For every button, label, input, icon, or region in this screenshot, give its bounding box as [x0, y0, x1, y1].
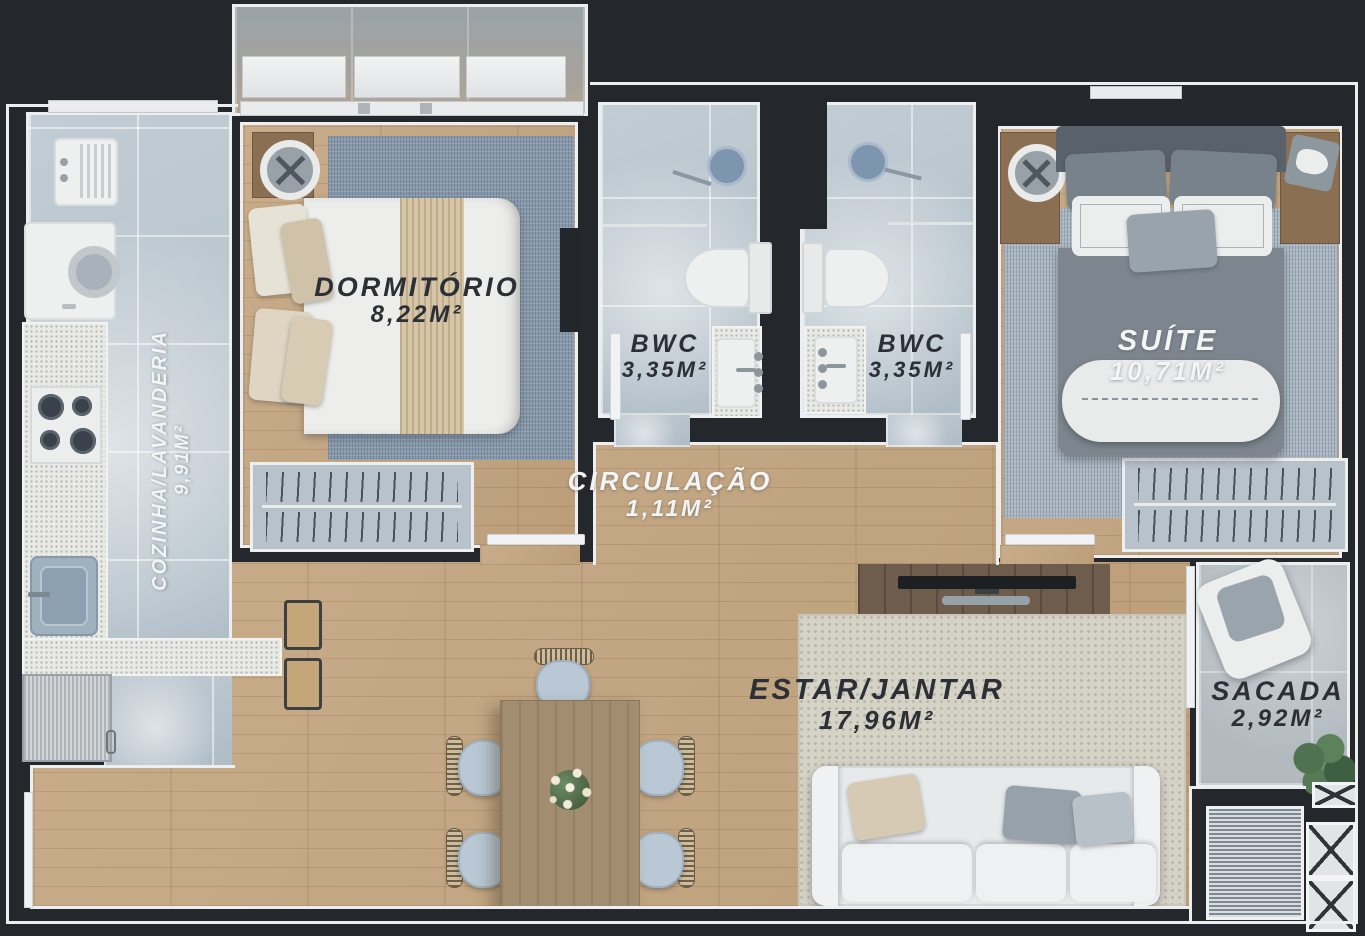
- living-side-window: [24, 792, 33, 908]
- bottom-wall-trim: [30, 906, 1192, 909]
- washing-machine: [24, 222, 116, 320]
- sofa: [812, 766, 1160, 906]
- room-area: 2,92M²: [1232, 706, 1325, 733]
- condenser-grille: [1206, 806, 1304, 920]
- shower-head: [848, 142, 888, 182]
- bathroom-left-door-opening: [614, 415, 690, 447]
- sofa-seat-cushion: [1070, 844, 1156, 902]
- toilet-bowl: [684, 248, 750, 308]
- sink-knob: [818, 380, 827, 389]
- washboard-ridges: [80, 144, 114, 198]
- hanging-clothes: [1138, 468, 1332, 500]
- suite-door-opening: [1000, 545, 1094, 565]
- shaft-wall: [797, 99, 827, 229]
- kitchen-floor-extension: [104, 668, 232, 768]
- bedroom-wardrobe: [250, 462, 474, 552]
- sink-spout: [736, 368, 756, 372]
- kitchen-sink: [30, 556, 98, 636]
- shower-glass-partition: [888, 222, 974, 225]
- flower-blossoms: [546, 766, 594, 814]
- washer-latch: [62, 304, 76, 309]
- ac-unit: [466, 56, 566, 98]
- room-label-dormitorio: DORMITÓRIO 8,22M²: [317, 272, 517, 329]
- burner: [72, 396, 92, 416]
- bedroom-door-leaf: [487, 534, 585, 545]
- tech-corner-trim: [1189, 786, 1306, 789]
- fridge-handle: [106, 730, 116, 754]
- bedroom-window: [240, 101, 584, 116]
- decor-tray: [1283, 134, 1340, 193]
- room-area: 9,91M²: [172, 424, 194, 495]
- bathroom-right-door-opening: [886, 415, 962, 447]
- sink-knob: [754, 384, 763, 393]
- sofa-pillow: [846, 773, 926, 842]
- bar-stool: [284, 600, 322, 650]
- armchair-cushion: [1215, 573, 1287, 644]
- toilet-bowl: [824, 248, 890, 308]
- shaft-marker-icon: [1312, 782, 1358, 808]
- closet-rail: [262, 505, 463, 508]
- suite-door-leaf: [1005, 534, 1095, 545]
- bar-stool: [284, 658, 322, 710]
- room-label-circulacao: CIRCULAÇÃO 1,11M²: [550, 467, 790, 522]
- outer-wall-trim: [1355, 84, 1358, 924]
- suite-window: [1090, 86, 1182, 99]
- sink-knob: [818, 348, 827, 357]
- burner: [38, 394, 64, 420]
- room-area: 10,71M²: [1110, 357, 1226, 386]
- room-name: COZINHA/LAVANDERIA: [149, 330, 172, 591]
- hanging-clothes: [1138, 510, 1332, 542]
- sofa-pillow: [1072, 791, 1135, 847]
- bedroom-door-opening: [480, 545, 580, 565]
- tank-faucet: [60, 174, 68, 182]
- burner: [40, 430, 60, 450]
- window-mullion: [420, 103, 432, 114]
- folded-cloth: [1294, 147, 1330, 177]
- elevator-shaft-icon: [1306, 822, 1356, 878]
- toilet-tank: [802, 242, 824, 314]
- window-mullion: [358, 103, 370, 114]
- outer-wall-trim: [6, 104, 238, 107]
- soundbar: [942, 596, 1030, 605]
- tank-faucet: [60, 158, 68, 166]
- room-name: SACADA: [1211, 676, 1345, 706]
- ac-unit: [354, 56, 460, 98]
- balcony-sliding-door: [1186, 566, 1195, 708]
- room-area: 1,11M²: [626, 496, 714, 522]
- suite-double-bed: [1056, 126, 1286, 456]
- room-label-cozinha: COZINHA/LAVANDERIA 9,91M²: [138, 330, 204, 590]
- room-label-bwc-left: BWC 3,35M²: [605, 330, 725, 383]
- outer-wall-trim: [6, 104, 9, 924]
- sink-spout: [826, 364, 846, 368]
- shower-glass-partition: [601, 224, 707, 227]
- cooktop: [30, 386, 102, 464]
- toilet-tank: [748, 242, 772, 314]
- tech-corner-trim: [1189, 788, 1192, 924]
- laundry-tank: [54, 138, 118, 206]
- hanging-clothes: [266, 472, 458, 502]
- hall-wall-trim: [996, 442, 999, 565]
- room-name: BWC: [631, 330, 700, 358]
- tv-stand: [975, 589, 999, 594]
- sofa-armrest: [812, 766, 838, 906]
- room-name: CIRCULAÇÃO: [568, 467, 773, 496]
- hanging-clothes: [266, 512, 458, 542]
- floor-plan: DORMITÓRIO 8,22M² BWC 3,35M² BWC 3,35M² …: [0, 0, 1365, 936]
- room-name: SUÍTE: [1118, 325, 1218, 357]
- room-area: 3,35M²: [622, 358, 708, 383]
- closet-rail: [1134, 503, 1336, 506]
- room-name: BWC: [878, 330, 947, 358]
- room-name: ESTAR/JANTAR: [749, 674, 1005, 706]
- shower-head: [707, 146, 747, 186]
- bolster-stitch: [1082, 398, 1260, 400]
- sofa-seat-cushion: [976, 844, 1066, 902]
- room-area: 17,96M²: [819, 706, 935, 735]
- sink-faucet: [28, 592, 50, 597]
- bedroom-tv-panel: [560, 228, 578, 332]
- ac-unit: [242, 56, 346, 98]
- tv-screen: [898, 576, 1076, 589]
- washer-door: [68, 246, 120, 298]
- room-name: DORMITÓRIO: [314, 272, 520, 302]
- burner: [70, 428, 96, 454]
- kitchen-wall-trim: [30, 765, 235, 768]
- room-label-sacada: SACADA 2,92M²: [1198, 676, 1358, 733]
- suite-wardrobe: [1122, 458, 1348, 552]
- room-area: 3,35M²: [869, 358, 955, 383]
- sofa-seat-cushion: [842, 844, 972, 902]
- room-label-suite: SUÍTE 10,71M²: [1068, 325, 1268, 387]
- sink-knob: [754, 352, 763, 361]
- sofa-pillow: [1002, 785, 1082, 845]
- outer-wall-trim: [6, 921, 1358, 924]
- room-area: 8,22M²: [371, 302, 464, 329]
- kitchen-peninsula-counter: [22, 638, 282, 676]
- room-label-estar: ESTAR/JANTAR 17,96M²: [757, 674, 997, 736]
- ceiling-fan: [260, 140, 320, 200]
- refrigerator: [22, 674, 112, 762]
- accent-pillow: [1126, 209, 1218, 273]
- room-label-bwc-right: BWC 3,35M²: [852, 330, 972, 383]
- outer-wall-trim: [590, 82, 1358, 85]
